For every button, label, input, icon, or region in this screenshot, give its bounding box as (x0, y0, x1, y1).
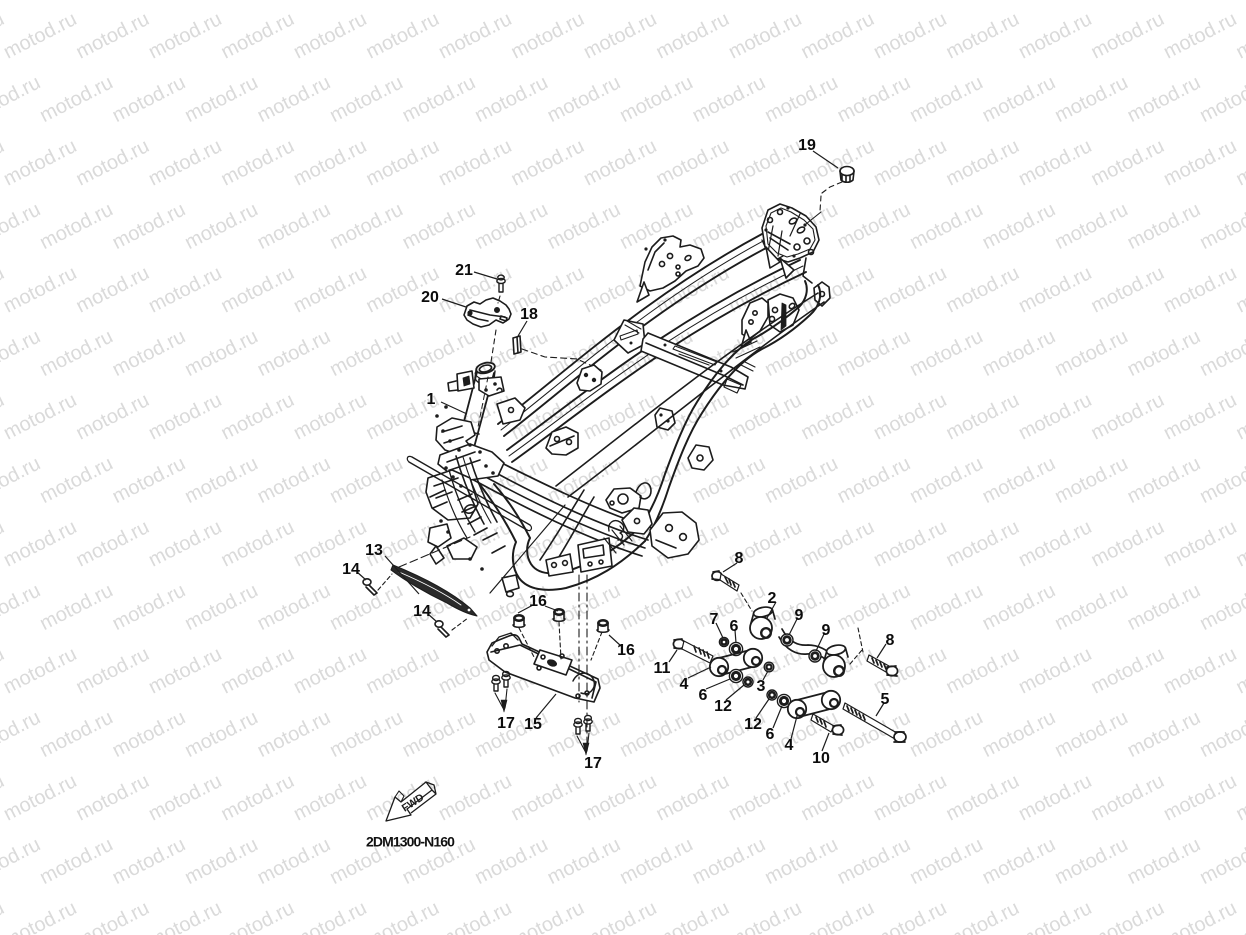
svg-text:14: 14 (413, 603, 431, 620)
svg-text:10: 10 (812, 750, 830, 767)
svg-text:11: 11 (654, 660, 671, 677)
svg-text:17: 17 (497, 715, 515, 732)
svg-text:20: 20 (421, 289, 439, 306)
svg-text:2DM1300-N160: 2DM1300-N160 (366, 834, 455, 850)
svg-text:8: 8 (886, 632, 895, 649)
svg-text:3: 3 (757, 678, 766, 695)
svg-text:5: 5 (881, 691, 890, 708)
svg-text:4: 4 (680, 676, 689, 693)
svg-text:12: 12 (744, 716, 762, 733)
svg-text:8: 8 (735, 550, 744, 567)
svg-text:13: 13 (365, 542, 383, 559)
svg-text:6: 6 (699, 687, 708, 704)
svg-text:7: 7 (710, 611, 719, 628)
svg-text:17: 17 (584, 755, 602, 772)
svg-text:18: 18 (520, 306, 538, 323)
svg-text:16: 16 (617, 642, 635, 659)
svg-text:1: 1 (427, 391, 436, 408)
svg-text:6: 6 (730, 618, 739, 635)
svg-text:2: 2 (768, 590, 777, 607)
svg-text:14: 14 (342, 561, 360, 578)
svg-text:16: 16 (529, 593, 547, 610)
svg-text:21: 21 (455, 262, 473, 279)
svg-text:6: 6 (766, 726, 775, 743)
svg-text:9: 9 (795, 607, 804, 624)
svg-text:9: 9 (822, 622, 831, 639)
svg-text:19: 19 (798, 137, 816, 154)
svg-text:4: 4 (785, 737, 794, 754)
svg-text:15: 15 (524, 716, 542, 733)
svg-text:12: 12 (714, 698, 732, 715)
